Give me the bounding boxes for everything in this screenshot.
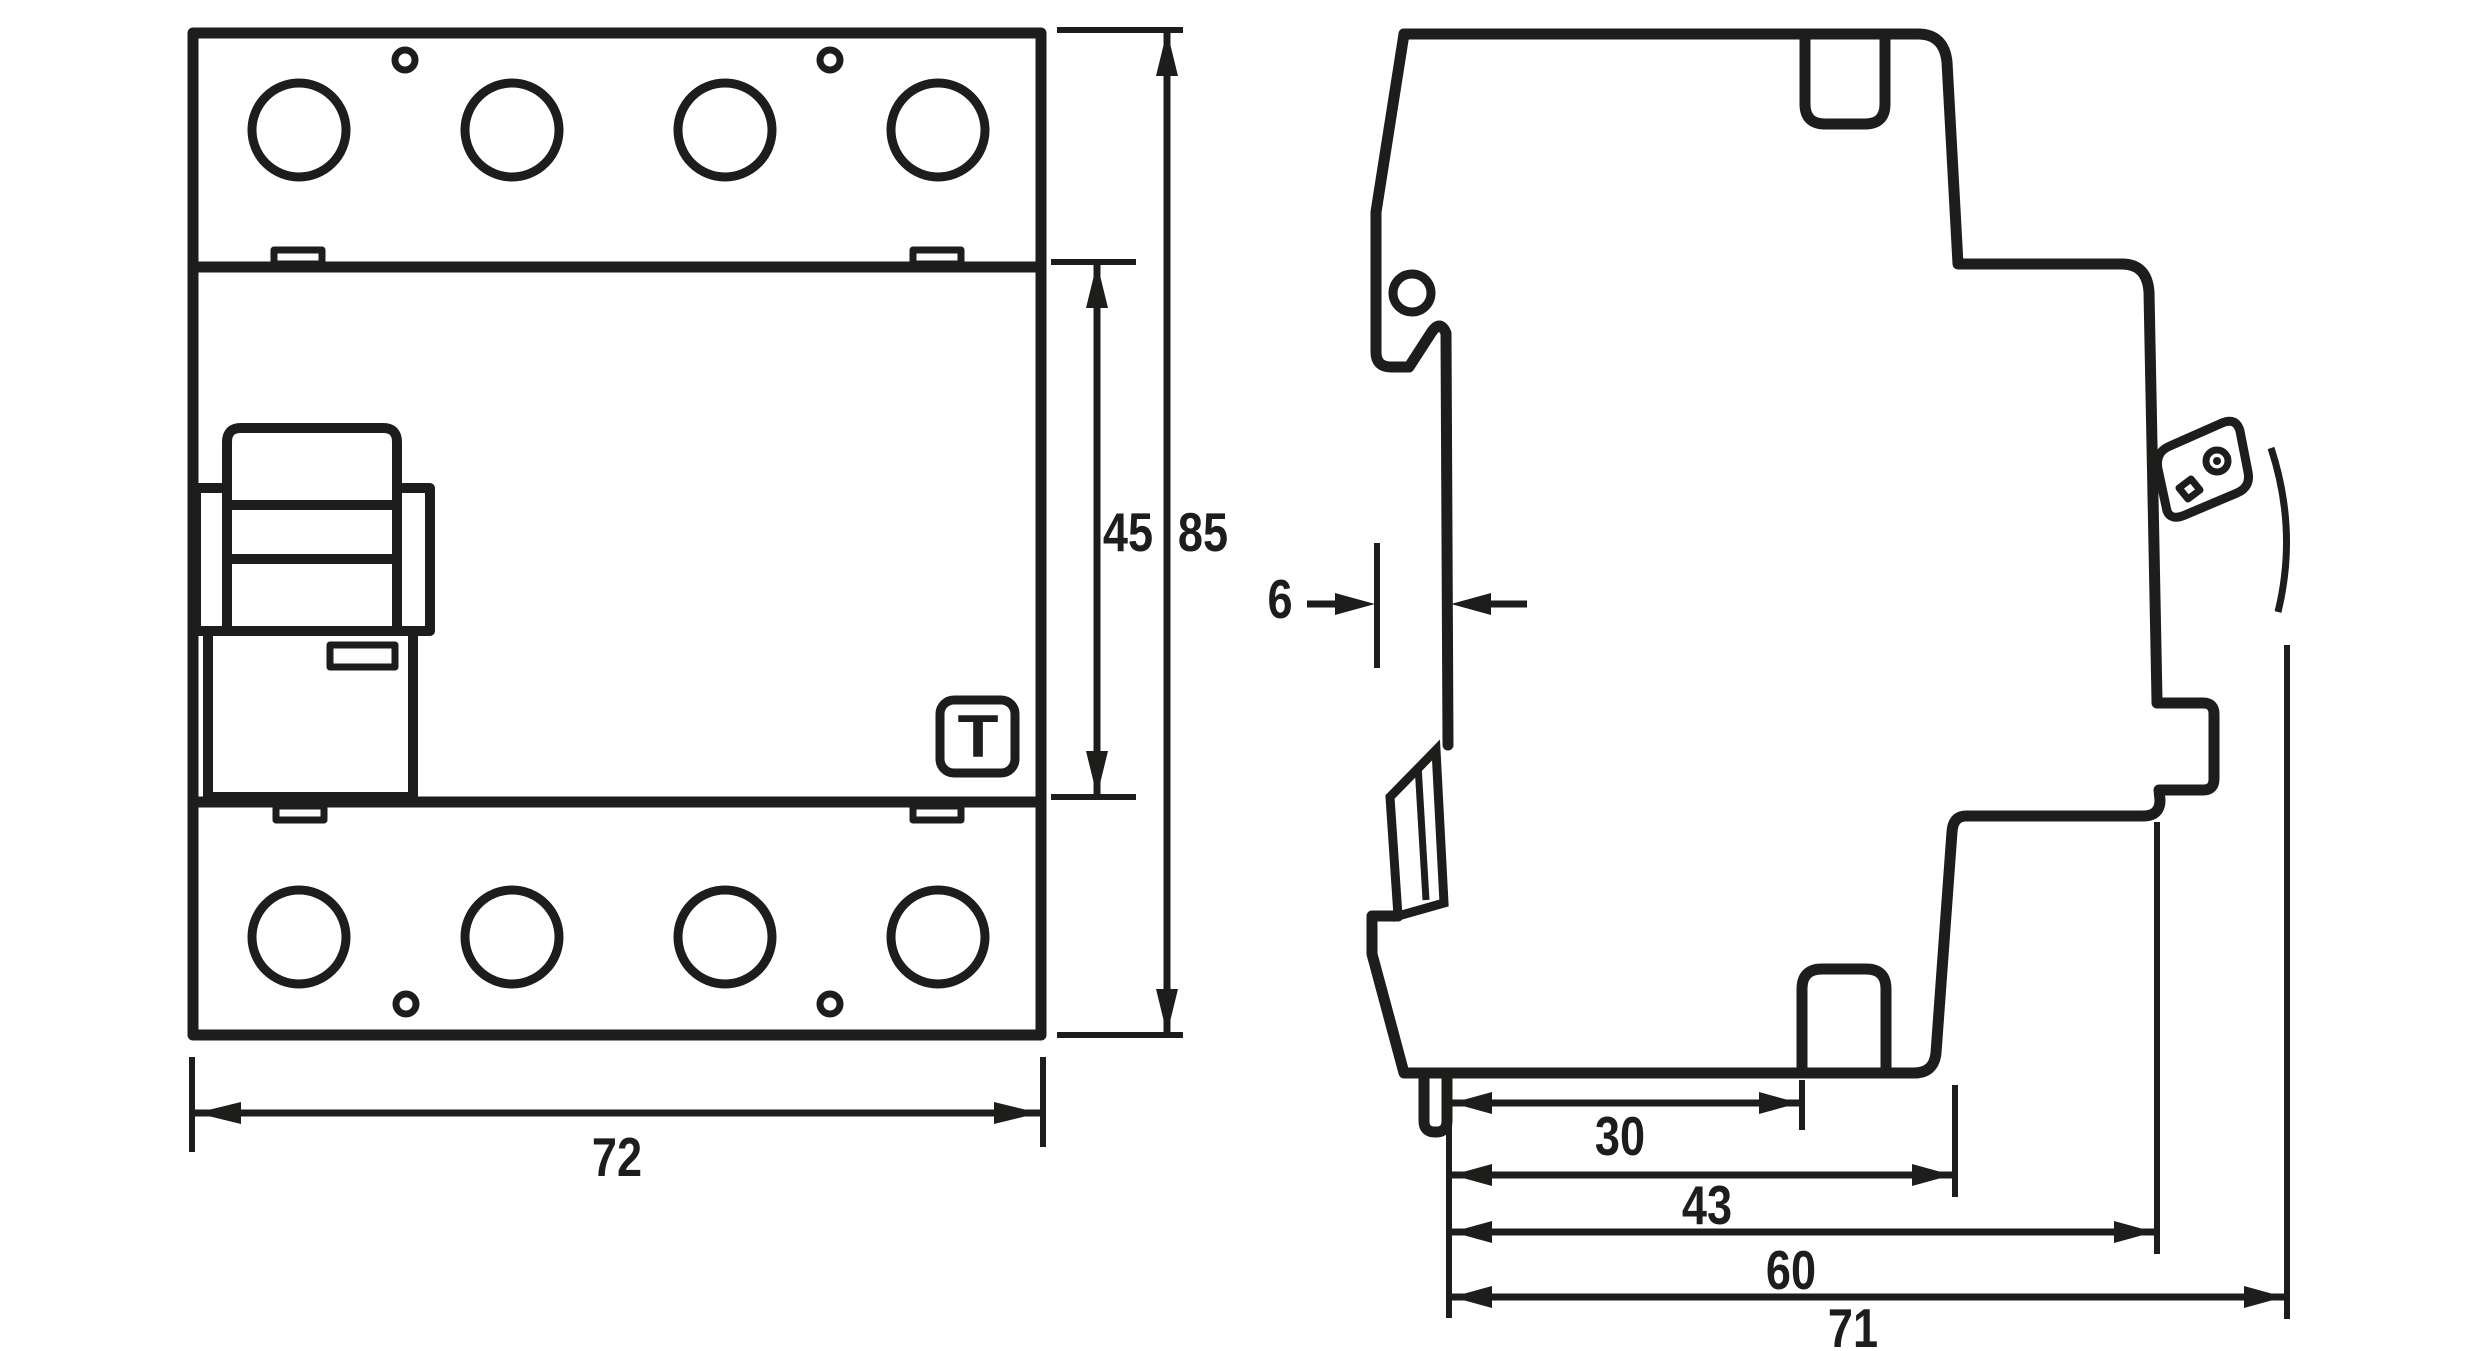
arrowhead-60-right — [2114, 1221, 2154, 1243]
dim-label-6: 6 — [1267, 568, 1292, 630]
arrowhead-6-left — [1335, 593, 1375, 615]
toggle-lever-body — [2158, 421, 2249, 517]
dim-label-85: 85 — [1178, 501, 1228, 563]
toggle-lever-detail — [2179, 479, 2200, 499]
front-view: T 72 45 85 — [192, 30, 1228, 1188]
lever-swing-arc — [2271, 448, 2287, 612]
rail-clip-pull-tab — [1424, 1073, 1447, 1132]
dimension-width-72: 72 — [192, 1057, 1043, 1188]
technical-drawing-canvas: T 72 45 85 — [0, 0, 2480, 1351]
arrowhead-30-left — [1452, 1092, 1492, 1114]
dim-label-60: 60 — [1766, 1239, 1816, 1301]
screw-hole-bottom-left — [396, 994, 416, 1014]
rail-clip-pivot-hole — [1393, 274, 1431, 312]
side-housing-outline — [1372, 34, 2214, 1073]
arrowhead-72-right — [994, 1102, 1039, 1124]
terminal-bottom-1 — [252, 890, 346, 984]
switch-lower-block — [208, 631, 413, 797]
arrowhead-43-right — [1912, 1164, 1952, 1186]
toggle-lever — [2158, 421, 2249, 517]
dimension-depth-30: 30 — [1449, 1080, 1802, 1167]
dimension-depth-71: 71 — [1449, 645, 2287, 1351]
screw-hole-top-right — [820, 50, 840, 70]
arrowhead-85-top — [1156, 31, 1178, 76]
dim-label-43: 43 — [1682, 1174, 1732, 1236]
terminal-top-4 — [891, 83, 985, 177]
arrowhead-71-left — [1452, 1286, 1492, 1308]
arrowhead-45-top — [1086, 263, 1108, 308]
dimension-drawing: T 72 45 85 — [0, 0, 2480, 1351]
toggle-lever-hole-center — [2213, 457, 2221, 465]
arrowhead-30-right — [1759, 1092, 1799, 1114]
switch-toggle-handle — [227, 428, 397, 631]
terminal-bottom-2 — [465, 890, 559, 984]
screw-hole-bottom-right — [820, 994, 840, 1014]
terminal-top-1 — [252, 83, 346, 177]
test-button-label: T — [957, 703, 998, 770]
terminal-bottom-3 — [678, 890, 772, 984]
arrowhead-71-right — [2244, 1286, 2284, 1308]
arrowhead-45-bottom — [1086, 751, 1108, 796]
arrowhead-6-right — [1451, 593, 1491, 615]
terminal-top-3 — [678, 83, 772, 177]
side-rear-edge-rail-hook — [1376, 34, 1448, 745]
side-view: 6 30 43 60 — [1267, 34, 2287, 1351]
arrowhead-72-left — [196, 1102, 241, 1124]
screw-access-recess-bottom — [1802, 969, 1886, 1071]
dim-label-71: 71 — [1828, 1297, 1878, 1351]
arrowhead-85-bottom — [1156, 989, 1178, 1034]
dim-label-72: 72 — [592, 1126, 642, 1188]
dimension-height-45: 45 — [1051, 262, 1153, 797]
test-button: T — [940, 700, 1015, 773]
dim-label-45: 45 — [1103, 501, 1153, 563]
dimension-depth-43: 43 — [1449, 1085, 1955, 1236]
arrowhead-60-left — [1452, 1221, 1492, 1243]
screw-access-recess-top — [1805, 36, 1885, 124]
dimension-rail-6: 6 — [1267, 543, 1527, 668]
arrowhead-43-left — [1452, 1164, 1492, 1186]
terminal-top-2 — [465, 83, 559, 177]
terminal-bottom-4 — [891, 890, 985, 984]
dim-label-30: 30 — [1595, 1105, 1645, 1167]
screw-hole-top-left — [395, 50, 415, 70]
